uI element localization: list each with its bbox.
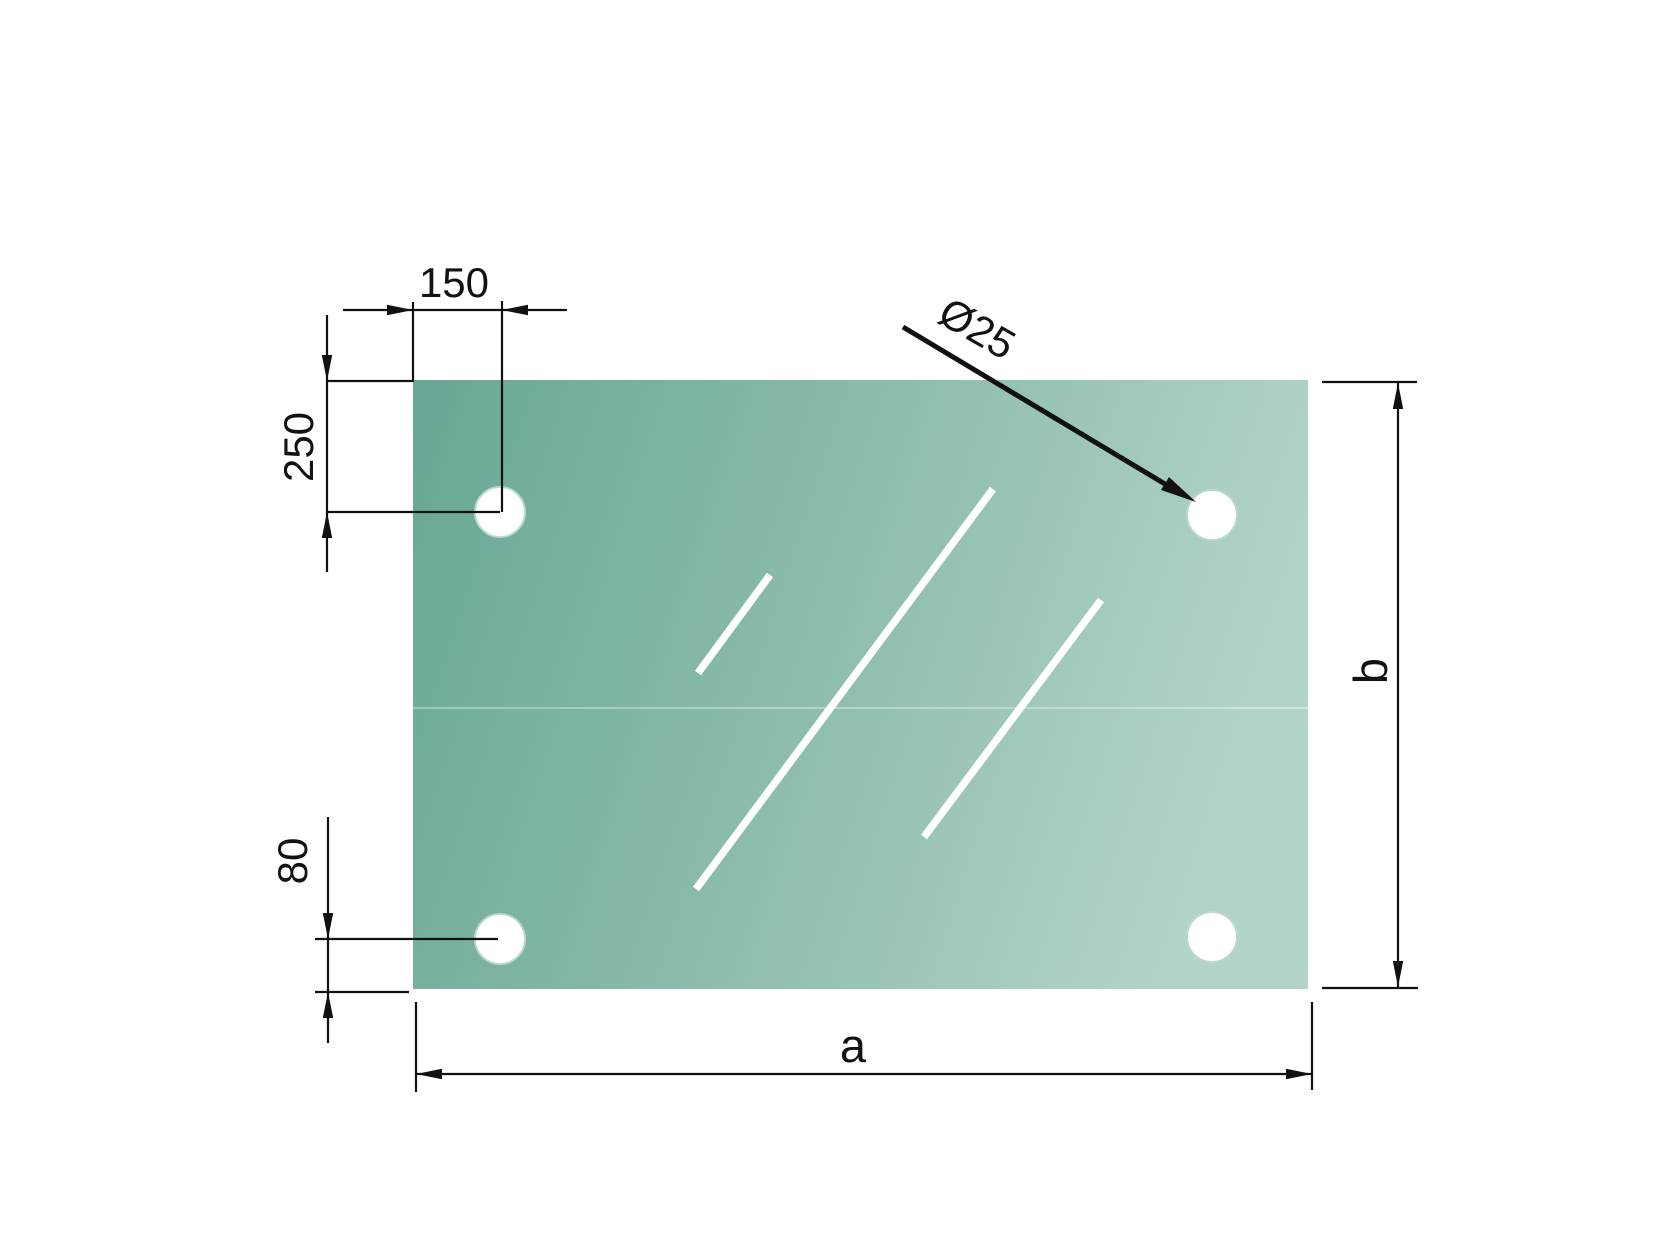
dimension-a-arrow-left bbox=[416, 1069, 442, 1079]
dimension-b-label: b bbox=[1344, 658, 1397, 684]
dimension-80-arrow-top bbox=[323, 913, 333, 939]
dimension-b-arrow-bottom bbox=[1393, 961, 1403, 987]
dimension-a-arrow-right bbox=[1286, 1069, 1312, 1079]
dimension-150-arrow-left bbox=[387, 305, 413, 315]
glass-panel bbox=[413, 380, 1308, 989]
dimension-80-arrow-bottom bbox=[323, 992, 333, 1018]
glass-panel-drawing: 150 250 80 a b Ø25 bbox=[0, 0, 1680, 1260]
diameter-label: Ø25 bbox=[931, 288, 1023, 368]
hole-top-right bbox=[1187, 490, 1237, 540]
dimension-80-label: 80 bbox=[269, 838, 316, 885]
dimension-b-arrow-top bbox=[1393, 383, 1403, 409]
dimension-b: b bbox=[1322, 382, 1418, 988]
dimension-150-label: 150 bbox=[419, 259, 489, 306]
dimension-a: a bbox=[416, 1002, 1312, 1092]
dimension-a-label: a bbox=[840, 1019, 867, 1072]
dimension-150-arrow-right bbox=[502, 305, 528, 315]
dimension-250-arrow-bottom bbox=[322, 512, 332, 538]
dimension-250-arrow-top bbox=[322, 355, 332, 381]
dimension-250-label: 250 bbox=[275, 412, 322, 482]
hole-bottom-right bbox=[1187, 912, 1237, 962]
technical-drawing-canvas: 150 250 80 a b Ø25 bbox=[0, 0, 1680, 1260]
